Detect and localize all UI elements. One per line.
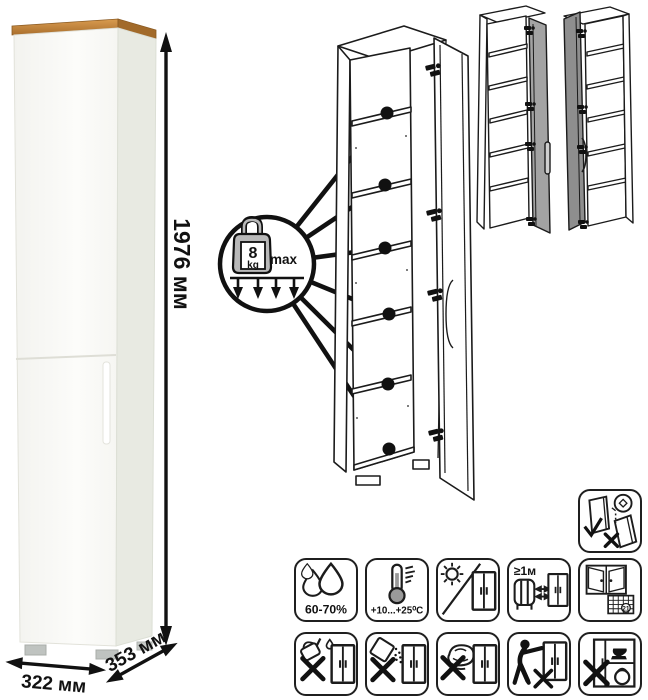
variant-door-left	[564, 7, 633, 230]
foot	[356, 476, 380, 485]
arrowhead-up	[160, 32, 172, 52]
x-mark	[303, 658, 324, 679]
wardrobe-glyph	[474, 645, 497, 683]
humidity-label: 60-70%	[305, 602, 347, 616]
no-liquids-icon	[294, 632, 358, 696]
shelf-load-callout: 8 kg max	[220, 217, 314, 311]
person	[515, 640, 542, 683]
no-dragging-icon	[507, 632, 571, 696]
foot	[413, 460, 429, 469]
load-unit: kg	[247, 260, 259, 271]
load-qualifier: max	[270, 252, 298, 267]
cabinet-door-front	[14, 28, 118, 646]
anchor-to-wall-icon	[578, 489, 642, 553]
calendar-day: 21	[622, 605, 630, 612]
arrowhead-right	[89, 663, 107, 676]
cabinet-foot	[25, 645, 46, 655]
powder-dots	[394, 648, 402, 664]
door-variants-drawing	[476, 2, 648, 240]
door-handle	[545, 142, 550, 174]
heat-distance-label: ≥1м	[514, 564, 536, 578]
exploded-drawing: 8 kg max	[206, 8, 481, 508]
open-cabinet-drawing	[334, 26, 474, 500]
cabinet-photo	[12, 19, 156, 659]
cabinet-side-panel	[116, 28, 156, 646]
calendar: 21	[608, 596, 633, 614]
width-dimension: 322 мм	[3, 656, 107, 699]
temperature-label: +10...+25⁰C	[371, 605, 424, 616]
gray-door	[564, 12, 585, 230]
product-photo: 1976 мм 322 мм 353 мм	[0, 0, 200, 700]
wardrobe-glyph	[548, 574, 567, 606]
wardrobe-glyph	[332, 645, 355, 683]
no-wet-cloth-icon	[436, 632, 500, 696]
no-abrasive-powder-icon	[365, 632, 429, 696]
x-mark	[605, 534, 617, 546]
left-panel	[334, 46, 350, 472]
x-mark	[373, 659, 394, 680]
height-label: 1976 мм	[169, 218, 195, 310]
product-sheet: 1976 мм 322 мм 353 мм	[0, 0, 648, 700]
gray-door	[529, 18, 550, 233]
open-window	[587, 566, 626, 594]
ventilation-calendar-icon: 21	[578, 558, 642, 622]
heat-distance-icon: ≥1м	[507, 558, 571, 622]
wardrobe-glyph	[473, 572, 496, 610]
height-dimension: 1976 мм	[160, 32, 195, 646]
temperature-icon: +10...+25⁰C	[365, 558, 429, 622]
arrowhead-left	[5, 656, 23, 669]
wardrobe-glyph	[403, 645, 426, 683]
door-handle-recess	[103, 362, 110, 444]
sun	[446, 568, 457, 579]
width-label: 322 мм	[20, 671, 87, 697]
no-direct-sunlight-icon	[436, 558, 500, 622]
radiator	[515, 580, 535, 610]
no-heavy-items-icon	[578, 632, 642, 696]
variant-door-right	[477, 6, 550, 233]
humidity-icon: 60-70%	[294, 558, 358, 622]
kettlebell	[615, 670, 629, 684]
